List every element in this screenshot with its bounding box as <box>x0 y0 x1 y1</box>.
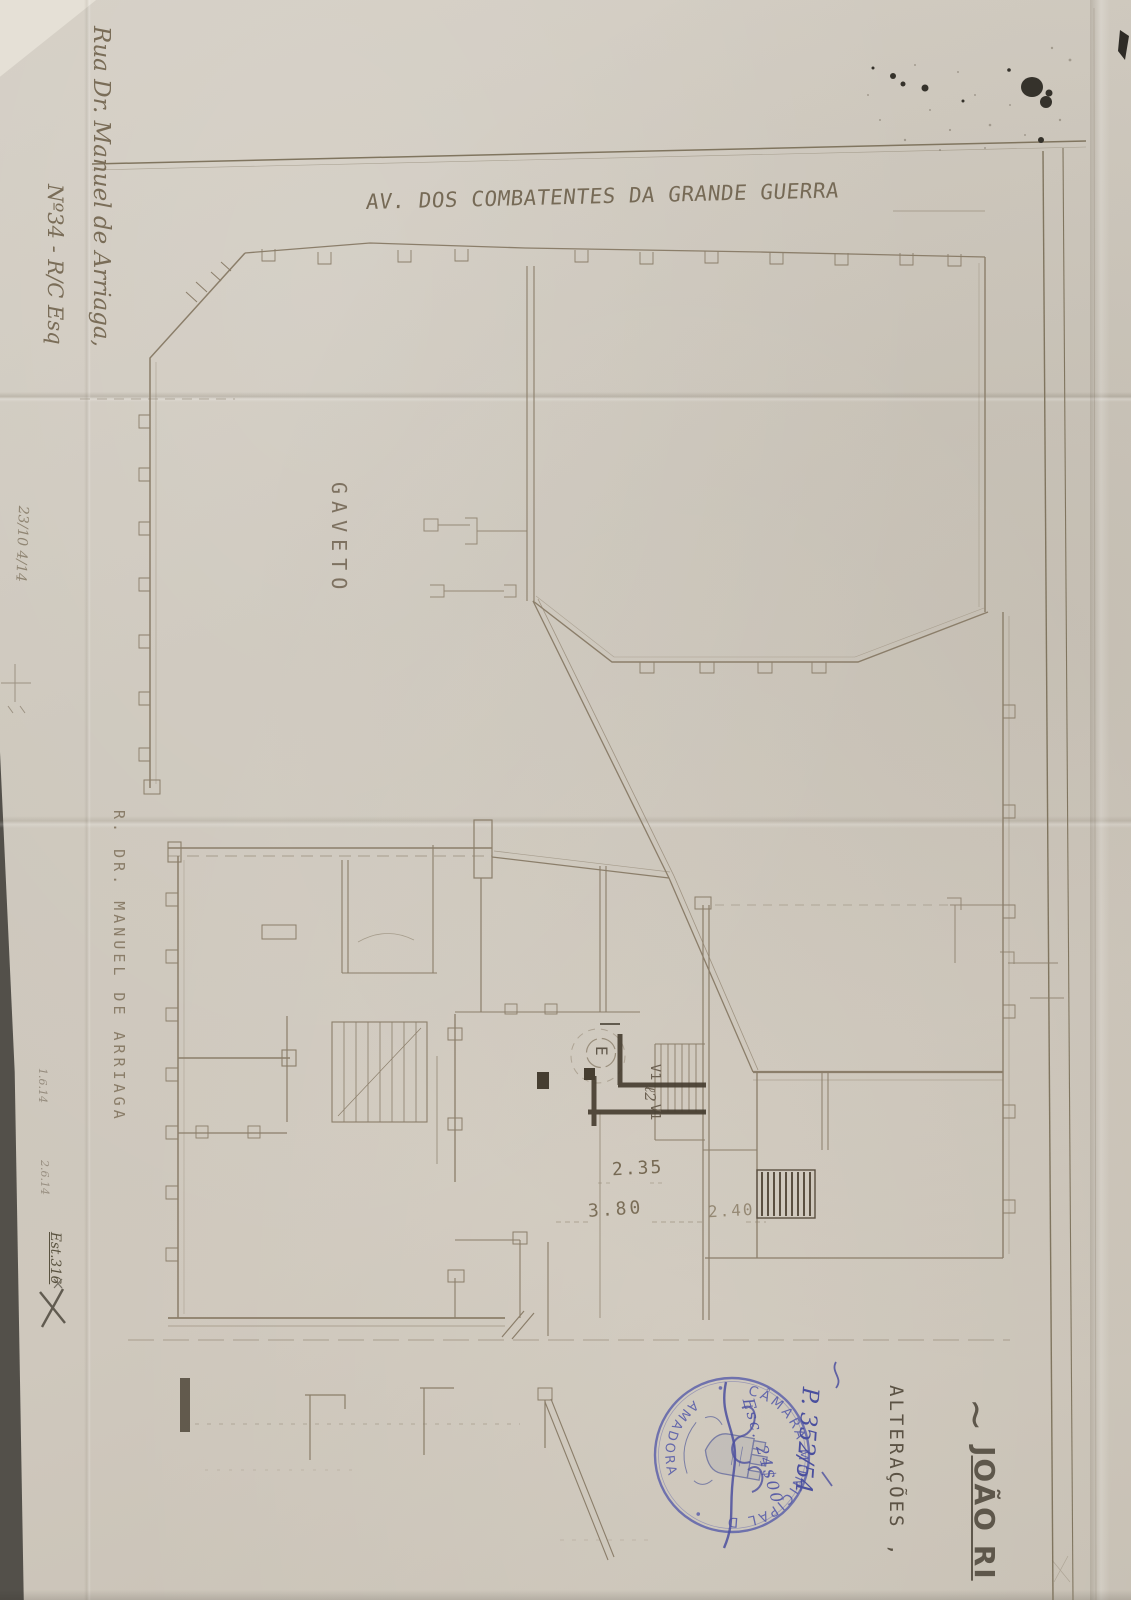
scanned-sheet: CÂMARA MUNICIPAL DA AMADORA <box>0 0 1131 1600</box>
entry-thick-walls <box>180 1024 706 1432</box>
svg-text:AMADORA: AMADORA <box>656 1394 703 1484</box>
border-frame <box>92 8 1096 1600</box>
handwritten-address-line2: Nº34 - R/C Esq <box>42 184 66 404</box>
speckle <box>867 47 1071 151</box>
window-mark-v1-upper: V1 <box>647 1064 662 1080</box>
dimension-2-35: 2.35 <box>612 1158 664 1181</box>
ink-blobs <box>867 30 1129 151</box>
gaveto-label: GAVETO <box>328 482 350 632</box>
alteracoes-label: ALTERAÇÕES , <box>885 1385 906 1600</box>
pencil-note-b: 2.6.14 <box>38 1160 50 1220</box>
window-mark-v1-lower: V1 <box>647 1104 662 1120</box>
pencil-note-a: 1.6.14 <box>36 1068 48 1128</box>
tilde-mark: ~ <box>953 1398 998 1432</box>
stair-entry <box>655 1044 705 1140</box>
entry-mark-e: E <box>592 1046 610 1056</box>
margin-marks <box>1 399 1070 1582</box>
dimension-3-80: 3.80 <box>587 1198 644 1222</box>
project-title-joao: JOÃO RI <box>969 1446 1000 1600</box>
street-left-label: R. DR. MANUEL DE ARRIAGA <box>110 810 127 1110</box>
stair-hatched <box>757 1170 815 1218</box>
plan-drawing: CÂMARA MUNICIPAL DA AMADORA <box>0 0 1131 1600</box>
pencil-note-c: Est.316 <box>47 1232 62 1312</box>
handwritten-address-line1: Rua Dr. Manuel de Arriaga, <box>87 26 113 371</box>
stair-main <box>332 1022 427 1122</box>
stamp-arc-bottom-text: AMADORA <box>656 1394 703 1484</box>
door-mark-l2: ℓ2 <box>641 1086 658 1102</box>
dimension-2-40: 2.40 <box>708 1201 755 1221</box>
upper-building <box>139 211 988 1072</box>
